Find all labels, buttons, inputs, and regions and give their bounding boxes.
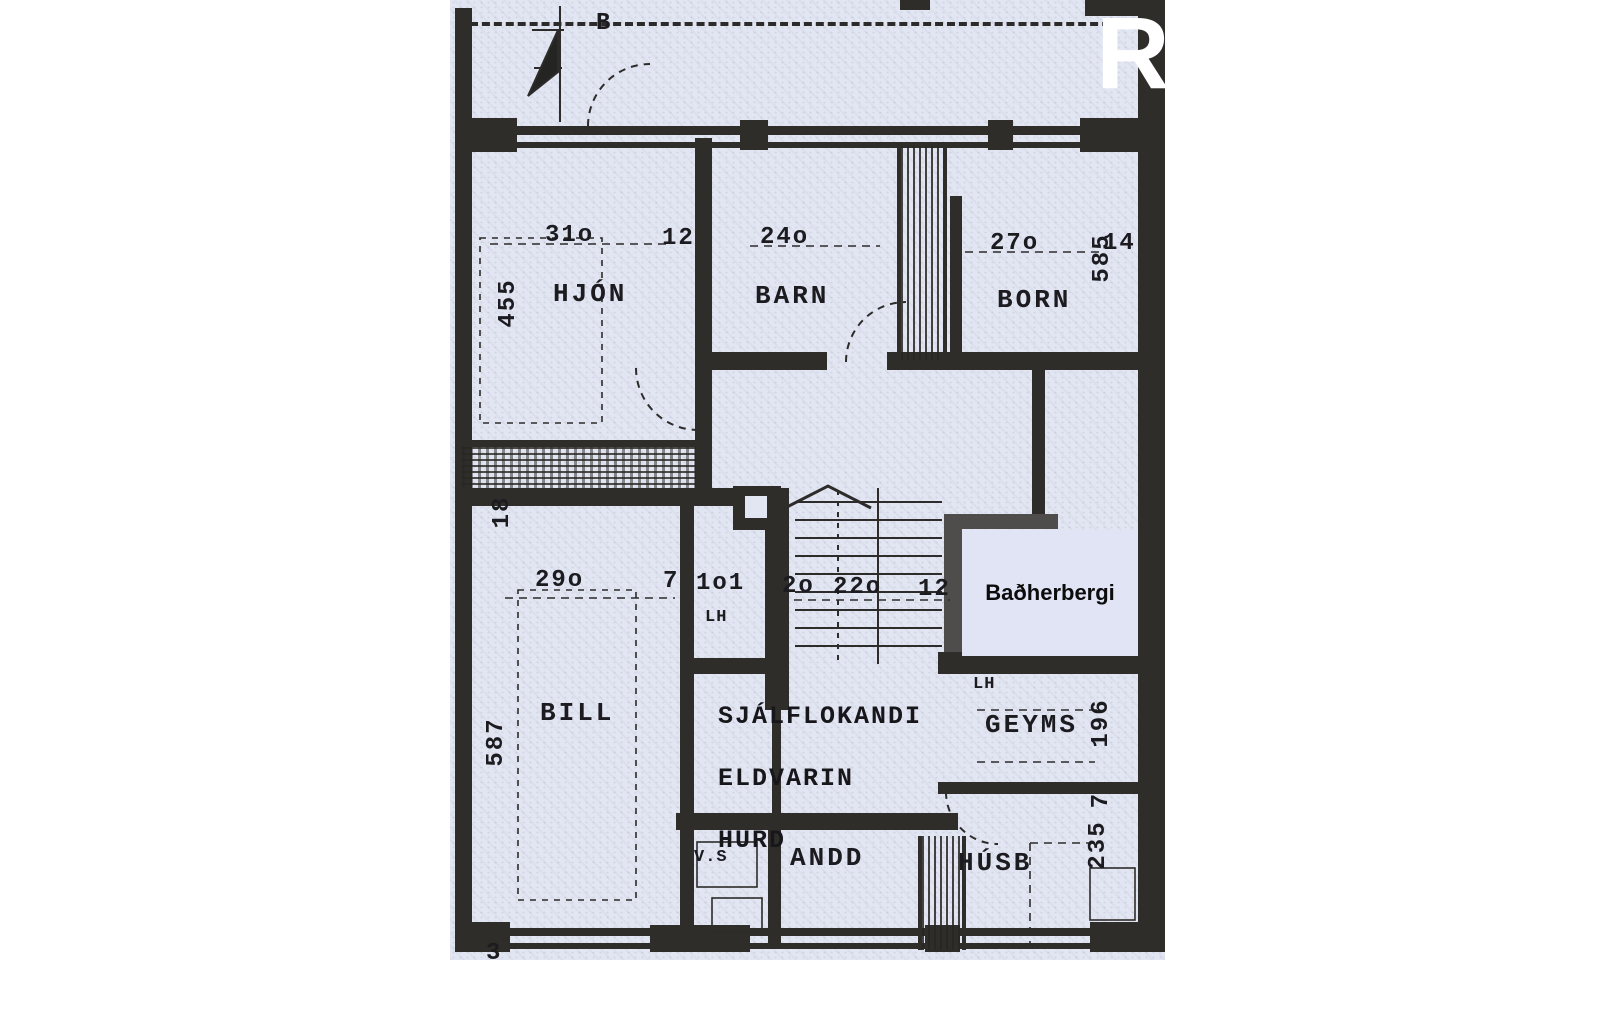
dim-text: 31o [545,222,594,249]
wall-segment [455,943,1165,949]
room-label-lh: LH [973,675,995,694]
room-label-bill: BILL [540,698,614,728]
wall-segment [455,142,1160,148]
fire-door-note-line: ELDVARIN [718,764,854,793]
dim-text: 12 [918,576,951,603]
wall-pier [1090,922,1165,952]
dim-text: 1o1 [696,570,745,597]
wall-segment [700,352,827,370]
dim-text: 12 [662,225,695,252]
stair-direction-arrow [785,486,871,508]
duct-shaft-opening [745,496,767,518]
door-arc-balcony [588,64,650,126]
dim-text: 18 [489,472,513,552]
dim-text: 235 [1085,805,1109,885]
compass-arrowhead [528,30,558,96]
wall-pier [650,925,750,952]
wall-pier [740,120,768,150]
dim-text: 196 [1088,683,1112,763]
dim-text: 3 [486,940,502,967]
room-label-born: BORN [997,285,1071,315]
wall-pier [455,118,517,152]
bathroom-wall [944,514,1058,529]
room-label-barn: BARN [755,281,829,311]
compass-letter: B [596,10,612,37]
fire-door-note-line: SJÁLFLOKANDI [718,702,922,731]
wall-segment [455,126,1160,135]
dim-text: 587 [483,702,507,782]
door-arc-hjon [636,368,698,430]
dim-text: 7 [663,568,679,595]
bathroom-label: Baðherbergi [985,580,1115,606]
car-outline [518,590,636,900]
room-label-lh: LH [705,608,727,627]
wall-pier [1080,118,1140,152]
wall-segment [455,928,1165,936]
wall-segment [1138,14,1165,950]
floorplan-scan: Baðherbergi [450,0,1165,960]
wall-segment [695,138,712,490]
dim-text: 22o [833,574,882,601]
wall-segment [1032,370,1045,520]
watermark-letter: R [1096,2,1170,104]
room-label-hjon: HJÓN [553,279,627,309]
dim-text: 24o [760,224,809,251]
property-dashed-line [470,22,1110,26]
bathroom-overlay: Baðherbergi [962,530,1138,656]
wall-segment [938,782,1148,794]
room-label-geyms: GEYMS [985,710,1078,740]
wall-segment [900,0,930,10]
wall-pier [988,120,1013,150]
room-label-husb: HÚSB [958,848,1032,878]
fire-door-note-line: HURD [718,826,786,855]
fire-door-note: SJÁLFLOKANDI ELDVARIN HURD [650,670,922,887]
dim-text: 2o [782,573,815,600]
hatched-chimney [897,146,947,360]
wall-segment [950,196,962,364]
dim-text: 14 [1103,230,1136,257]
dim-text: 27o [990,230,1039,257]
page: { "page": { "background": "#ffffff" }, "… [0,0,1600,1028]
dim-text: 455 [495,263,519,343]
dim-text: 29o [535,567,584,594]
